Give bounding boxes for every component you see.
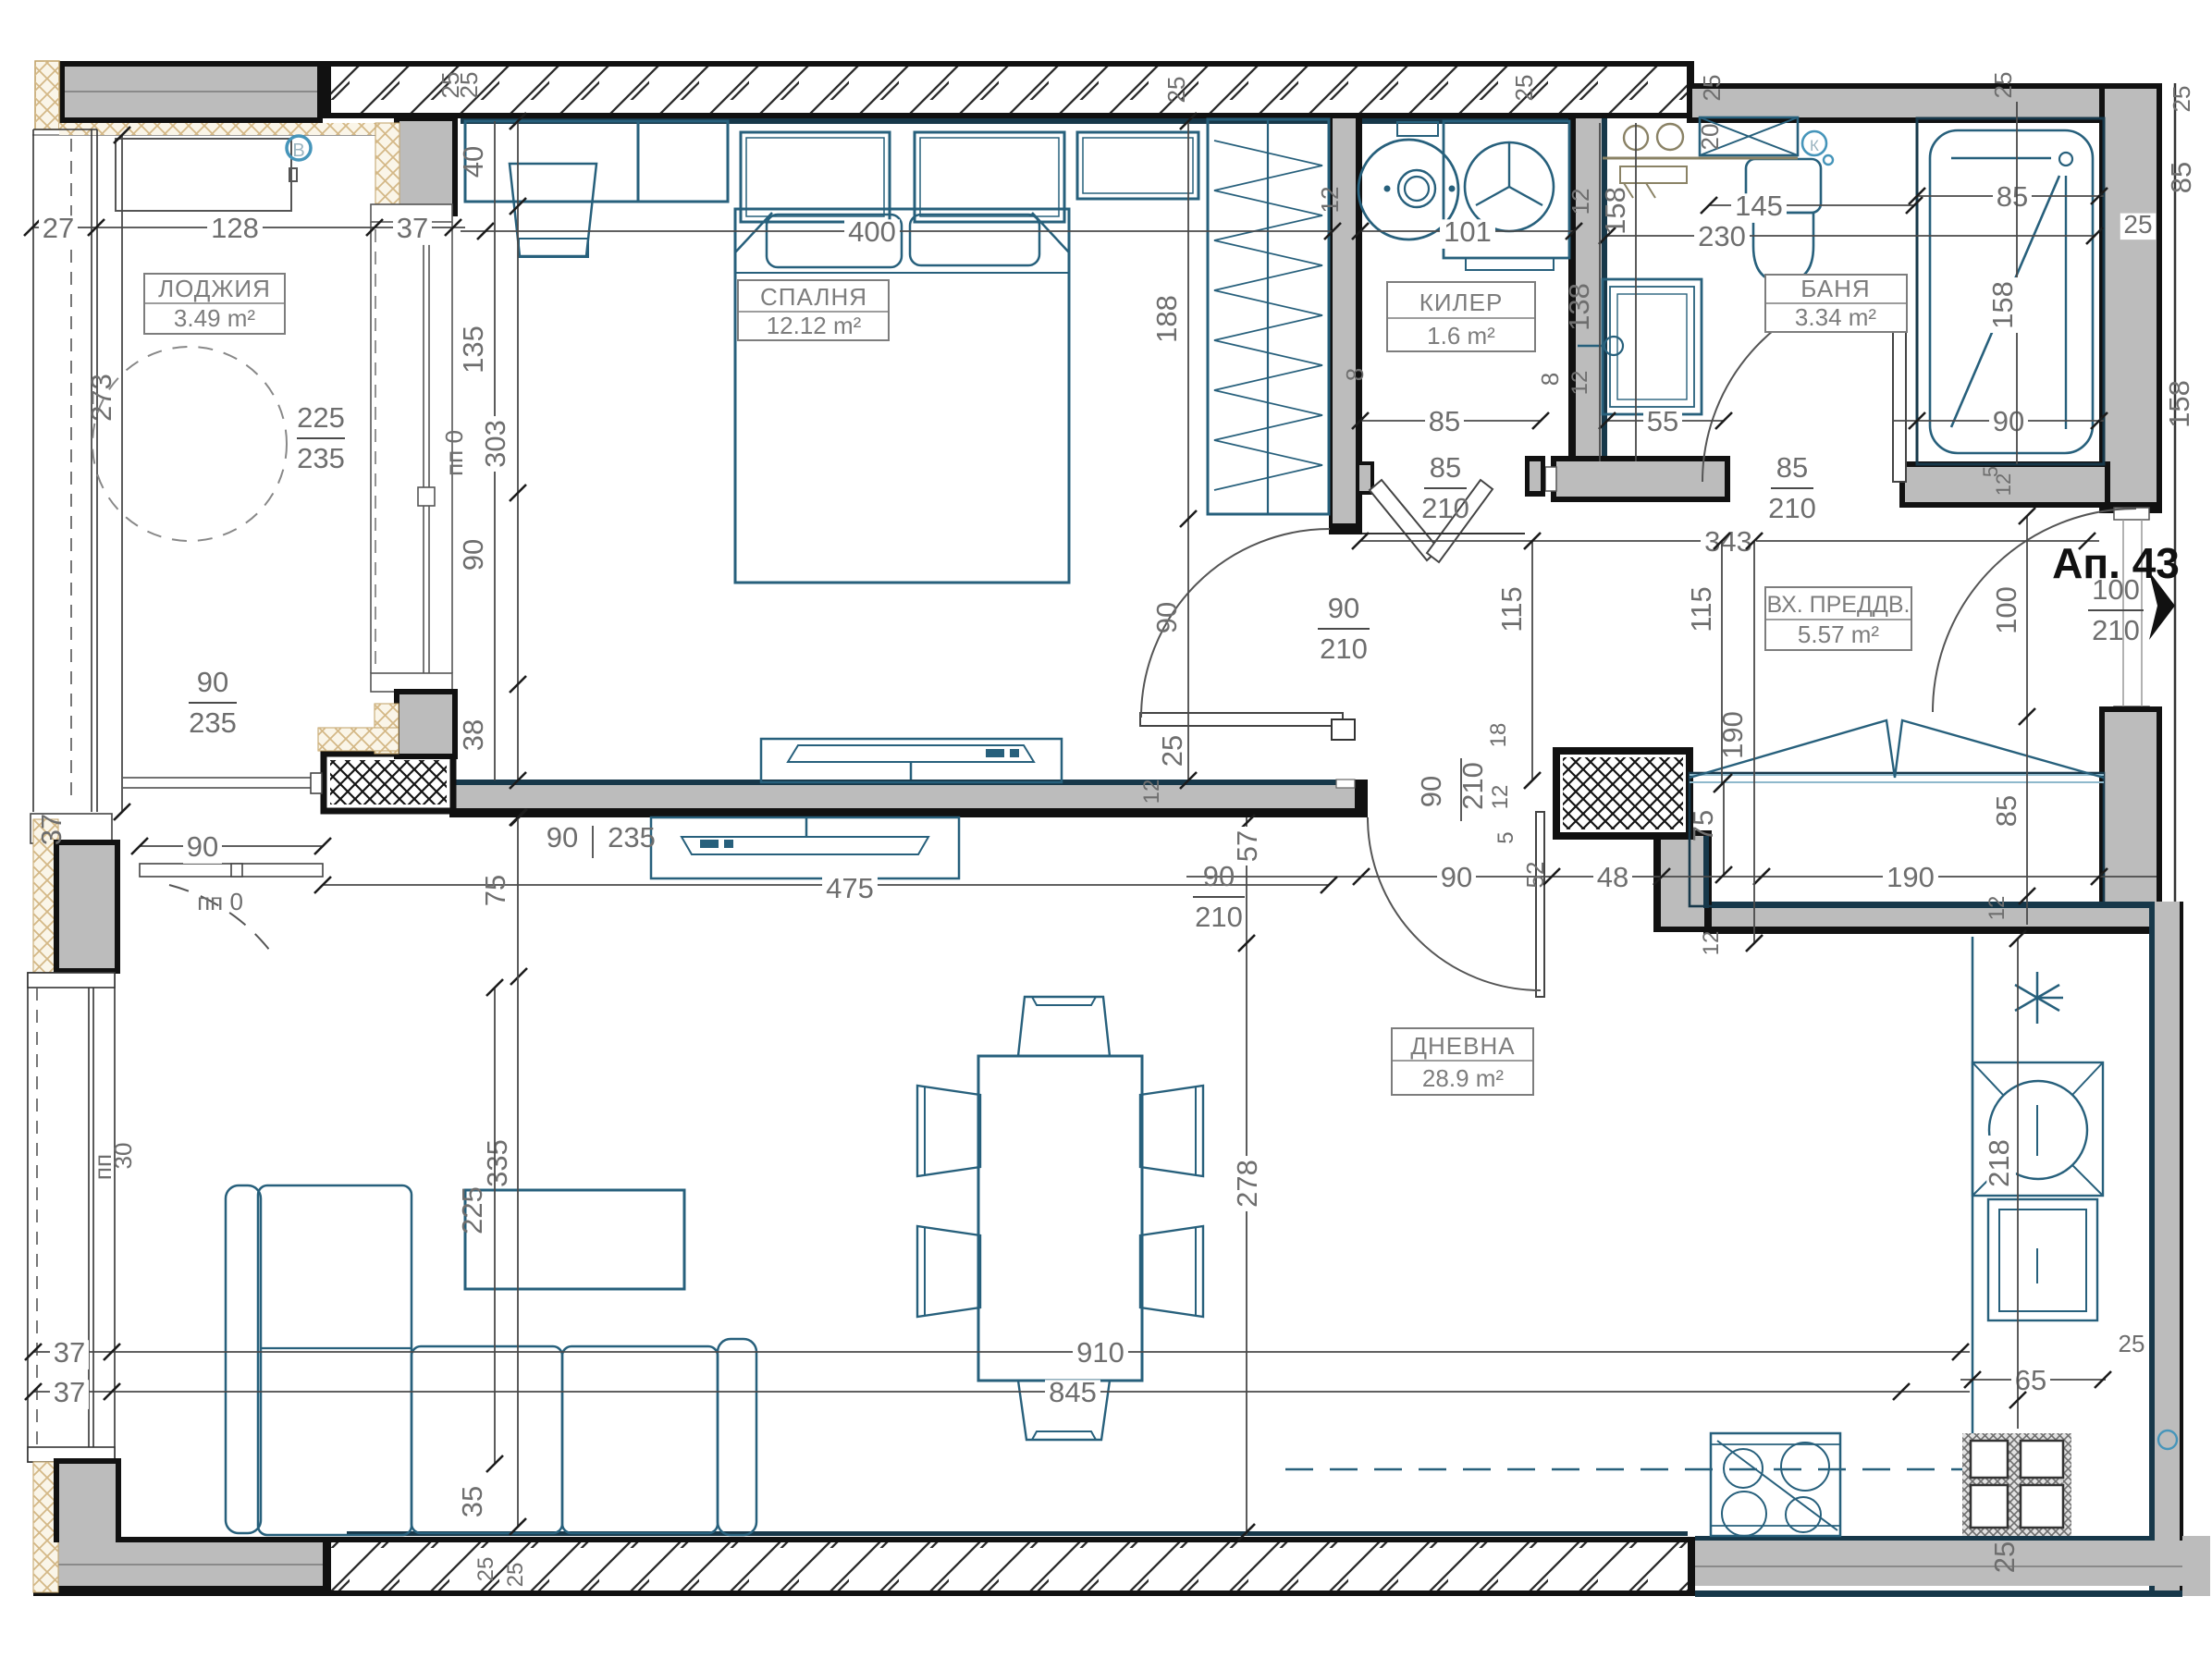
svg-text:52: 52 [1521,862,1549,889]
svg-text:65: 65 [2015,1364,2046,1396]
svg-text:ЛОДЖИЯ: ЛОДЖИЯ [158,275,271,302]
svg-text:190: 190 [1716,711,1749,759]
svg-text:210: 210 [1195,901,1243,933]
svg-text:303: 303 [479,420,511,468]
svg-text:12: 12 [1567,189,1594,215]
svg-text:158: 158 [2163,380,2195,428]
svg-text:128: 128 [211,212,259,244]
svg-text:235: 235 [608,821,656,853]
svg-text:145: 145 [1735,190,1783,222]
svg-text:12: 12 [1316,187,1344,214]
svg-text:пп 0: пп 0 [440,430,468,476]
svg-text:25: 25 [2123,210,2152,239]
svg-text:5.57 m²: 5.57 m² [1798,620,1879,648]
svg-text:25: 25 [1156,735,1188,767]
svg-text:335: 335 [481,1139,513,1187]
svg-text:25: 25 [455,72,483,99]
svg-text:8: 8 [1536,373,1564,386]
svg-text:25: 25 [1989,72,2017,99]
svg-text:235: 235 [189,706,237,739]
svg-text:25: 25 [1510,75,1538,102]
svg-text:135: 135 [457,325,489,374]
svg-text:3.34 m²: 3.34 m² [1795,303,1876,331]
svg-text:БАНЯ: БАНЯ [1800,275,1870,302]
svg-text:СПАЛНЯ: СПАЛНЯ [760,283,867,311]
svg-text:5: 5 [1493,831,1518,843]
svg-text:18: 18 [1486,723,1511,748]
svg-text:КИЛЕР: КИЛЕР [1419,289,1504,316]
svg-text:30: 30 [109,1143,137,1170]
svg-text:158: 158 [1986,281,2019,329]
svg-text:75: 75 [479,875,511,906]
svg-text:25: 25 [2119,1330,2145,1357]
svg-text:218: 218 [1983,1139,2015,1187]
svg-text:ВХ. ПРЕДДВ.: ВХ. ПРЕДДВ. [1767,592,1911,618]
svg-text:40: 40 [457,146,489,178]
svg-text:85: 85 [1997,180,2028,213]
svg-text:90: 90 [1328,592,1359,624]
svg-text:210: 210 [1421,492,1469,524]
svg-text:85: 85 [1990,795,2022,827]
svg-text:8: 8 [1341,368,1369,381]
svg-text:235: 235 [297,442,345,474]
svg-text:25: 25 [473,1557,498,1582]
svg-text:12: 12 [1567,371,1592,396]
svg-text:28.9 m²: 28.9 m² [1422,1064,1504,1092]
svg-text:90: 90 [1203,860,1235,892]
svg-text:12: 12 [1699,931,1724,956]
svg-text:85: 85 [1430,451,1461,484]
svg-text:230: 230 [1698,220,1746,252]
svg-text:75: 75 [1687,810,1719,841]
svg-text:27: 27 [43,212,74,244]
svg-text:225: 225 [456,1186,488,1234]
svg-text:пп 0: пп 0 [197,888,243,915]
svg-text:90: 90 [197,666,228,698]
svg-text:90: 90 [187,830,218,863]
svg-text:100: 100 [2092,573,2140,606]
svg-text:ДНЕВНА: ДНЕВНА [1410,1032,1515,1060]
svg-text:85: 85 [1776,451,1808,484]
svg-text:55: 55 [1647,405,1678,437]
svg-text:101: 101 [1444,215,1492,248]
svg-text:37: 37 [54,1336,85,1369]
svg-text:343: 343 [1704,525,1752,558]
svg-text:1.6 m²: 1.6 m² [1427,322,1495,350]
svg-text:100: 100 [1990,586,2022,634]
svg-text:273: 273 [85,374,117,422]
svg-text:25: 25 [1988,1541,2021,1573]
svg-text:37: 37 [54,1376,85,1408]
svg-text:138: 138 [1563,283,1595,331]
svg-text:57: 57 [1231,830,1263,862]
svg-text:278: 278 [1231,1160,1263,1208]
svg-text:12: 12 [1985,896,2009,921]
svg-text:25: 25 [2168,86,2195,113]
svg-text:225: 225 [297,401,345,434]
svg-text:48: 48 [1597,861,1628,893]
svg-text:12: 12 [1139,780,1164,804]
svg-text:910: 910 [1076,1336,1124,1369]
svg-text:12: 12 [1488,785,1513,810]
svg-text:К: К [1810,137,1819,154]
svg-text:25: 25 [1698,75,1726,102]
svg-text:12.12 m²: 12.12 m² [767,312,862,339]
svg-text:38: 38 [457,719,489,751]
svg-text:85: 85 [1429,405,1460,437]
svg-text:90: 90 [457,539,489,571]
svg-text:85: 85 [2165,162,2197,193]
svg-text:25: 25 [503,1563,528,1588]
svg-text:90: 90 [1150,602,1183,633]
svg-text:845: 845 [1049,1376,1097,1408]
svg-text:190: 190 [1886,861,1935,893]
svg-text:90: 90 [1415,776,1447,807]
svg-text:37: 37 [35,814,68,845]
svg-text:115: 115 [1685,586,1717,632]
svg-text:90: 90 [1993,405,2024,437]
svg-text:B: B [292,141,304,161]
svg-text:20: 20 [1696,124,1724,151]
svg-text:158: 158 [1599,187,1631,235]
svg-text:115: 115 [1495,586,1528,632]
svg-text:35: 35 [456,1486,488,1517]
svg-text:400: 400 [848,215,896,248]
svg-text:188: 188 [1150,295,1183,343]
svg-text:90: 90 [1441,861,1472,893]
svg-text:3.49 m²: 3.49 m² [174,304,255,332]
svg-text:25: 25 [1162,77,1190,104]
svg-text:210: 210 [1768,492,1816,524]
svg-text:475: 475 [826,872,874,904]
svg-text:90: 90 [547,821,578,853]
svg-text:210: 210 [2092,614,2140,646]
svg-text:12: 12 [1992,473,2015,496]
svg-text:210: 210 [1320,632,1368,665]
svg-text:37: 37 [397,212,428,244]
